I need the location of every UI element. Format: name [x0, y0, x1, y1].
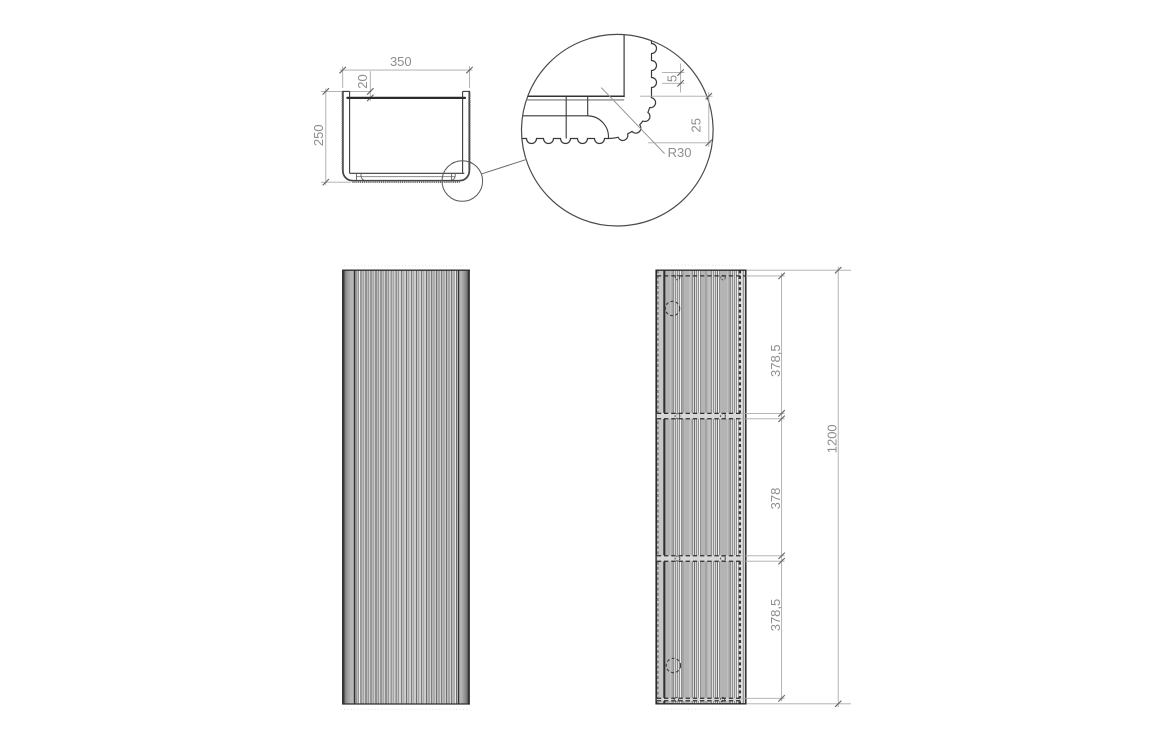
svg-text:350: 350 [390, 54, 412, 69]
svg-text:1200: 1200 [824, 424, 839, 453]
svg-text:20: 20 [355, 74, 370, 88]
svg-text:5: 5 [665, 75, 680, 82]
svg-text:378,5: 378,5 [768, 599, 783, 632]
svg-text:R30: R30 [668, 145, 692, 160]
svg-text:250: 250 [311, 124, 326, 146]
svg-text:378: 378 [768, 488, 783, 510]
svg-text:378,5: 378,5 [768, 344, 783, 377]
svg-text:25: 25 [689, 118, 704, 132]
